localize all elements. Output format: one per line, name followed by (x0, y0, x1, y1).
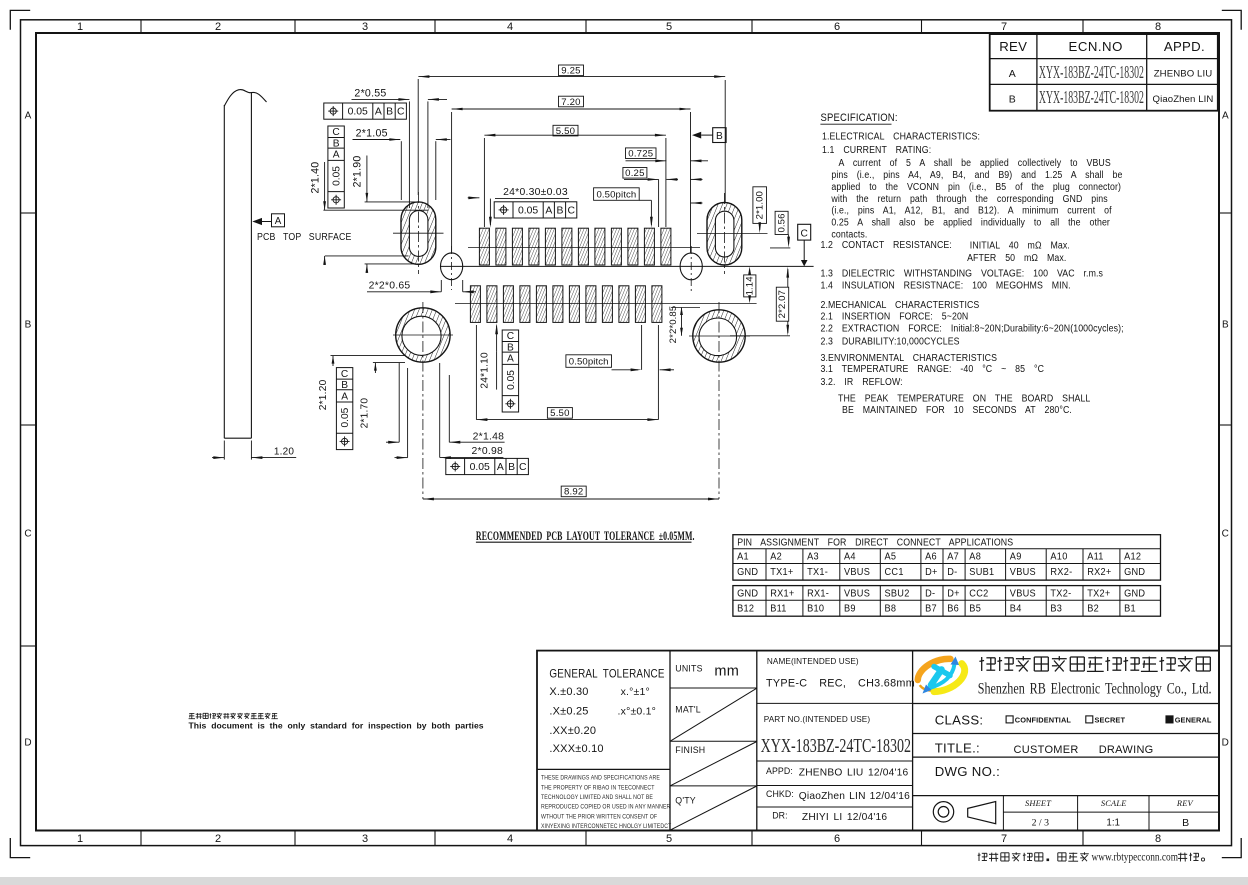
svg-text:C: C (1222, 529, 1229, 540)
svg-text:B9: B9 (844, 603, 856, 614)
svg-text:7: 7 (1001, 21, 1007, 33)
svg-text:XINYEXING INTERCONNETEC HNOLGY: XINYEXING INTERCONNETEC HNOLGY LIMITEDCT (541, 824, 672, 831)
svg-text:A: A (25, 111, 32, 122)
svg-text:A10: A10 (1050, 551, 1067, 562)
svg-text:THE PEAK TEMPERATURE ON THE BO: THE PEAK TEMPERATURE ON THE BOARD SHALL (838, 392, 1090, 404)
svg-text:A8: A8 (969, 551, 981, 562)
svg-text:GND: GND (737, 567, 758, 578)
svg-text:CC1: CC1 (885, 567, 904, 578)
svg-text:TITLE.:: TITLE.: (935, 741, 980, 756)
svg-text:A current of 5 A shall be appl: A current of 5 A shall be applied collec… (839, 157, 1111, 169)
svg-text:VBUS: VBUS (844, 567, 870, 578)
svg-text:3: 3 (362, 21, 368, 33)
svg-text:.XX±0.20: .XX±0.20 (549, 725, 596, 737)
svg-text:A: A (333, 150, 340, 161)
svg-text:2: 2 (215, 833, 221, 845)
svg-text:X.±0.30: X.±0.30 (549, 686, 588, 698)
svg-text:A: A (1222, 111, 1229, 122)
svg-text:0.50pitch: 0.50pitch (596, 189, 636, 200)
svg-text:TYPE-C REC, CH3.68mm: TYPE-C REC, CH3.68mm (766, 678, 915, 690)
svg-text:2*0.98: 2*0.98 (472, 446, 504, 457)
svg-text:A: A (275, 216, 282, 227)
svg-text:XYX-183BZ-24TC-18302: XYX-183BZ-24TC-18302 (1039, 63, 1144, 83)
svg-text:C: C (801, 229, 808, 240)
svg-text:REV: REV (1176, 799, 1194, 808)
svg-text:1.20: 1.20 (274, 447, 295, 458)
svg-text:REPRODUCED COPIED OR USED IN A: REPRODUCED COPIED OR USED IN ANY MANNER (541, 804, 671, 811)
svg-text:SECRET: SECRET (1095, 716, 1126, 725)
svg-text:CHKD:: CHKD: (766, 789, 794, 799)
svg-text:C: C (519, 462, 527, 473)
svg-text:2.MECHANICAL CHARACTERISTICS: 2.MECHANICAL CHARACTERISTICS (821, 298, 980, 310)
svg-text:2: 2 (215, 21, 221, 33)
svg-text:D: D (1222, 738, 1229, 749)
svg-text:1.14: 1.14 (744, 276, 755, 296)
svg-text:B2: B2 (1087, 603, 1099, 614)
svg-text:APPD.: APPD. (1164, 39, 1205, 54)
svg-text:A6: A6 (925, 551, 937, 562)
svg-text:PART NO.(INTENDED USE): PART NO.(INTENDED USE) (764, 715, 871, 724)
svg-text:2*1.90: 2*1.90 (351, 156, 363, 188)
svg-text:A11: A11 (1087, 551, 1104, 562)
svg-text:1:1: 1:1 (1106, 818, 1120, 829)
svg-text:WTHOUT THE PRIOR WRITTEN CONS: WTHOUT THE PRIOR WRITTEN CONSENT OF (541, 814, 657, 821)
svg-text:0.56: 0.56 (776, 213, 787, 232)
svg-text:TX2-: TX2- (1050, 588, 1071, 599)
svg-text:QiaoZhen LIN 12/04'16: QiaoZhen LIN 12/04'16 (799, 791, 910, 802)
svg-text:www.rbtypecconn.com: www.rbtypecconn.com (1092, 852, 1178, 864)
svg-text:This document is the only stan: This document is the only standard for i… (189, 720, 484, 730)
svg-text:C: C (507, 331, 514, 342)
svg-text:5: 5 (666, 833, 672, 845)
svg-text:MAT'L: MAT'L (675, 705, 701, 715)
svg-text:B: B (716, 131, 723, 142)
svg-text:7: 7 (1001, 833, 1007, 845)
svg-text:x.°±1°: x.°±1° (621, 686, 650, 698)
svg-text:0.05: 0.05 (340, 407, 351, 427)
svg-text:UNITS: UNITS (675, 663, 702, 673)
svg-text:2.2 EXTRACTION FORCE: Initial:: 2.2 EXTRACTION FORCE: Initial:8~20N;Dura… (821, 322, 1124, 334)
svg-text:D-: D- (947, 567, 957, 578)
svg-text:B8: B8 (885, 603, 897, 614)
svg-text:B: B (341, 380, 348, 391)
svg-text:6: 6 (834, 833, 840, 845)
svg-text:0.25 A shall also be applied i: 0.25 A shall also be applied individuall… (831, 216, 1110, 228)
svg-text:A: A (545, 205, 552, 216)
svg-text:CLASS:: CLASS: (935, 713, 984, 728)
svg-text:24*1.10: 24*1.10 (480, 352, 491, 389)
svg-text:A: A (1009, 68, 1016, 80)
svg-text:D: D (24, 738, 31, 749)
svg-text:B: B (1182, 817, 1189, 829)
svg-text:mm: mm (714, 664, 739, 680)
svg-text:3: 3 (362, 833, 368, 845)
svg-text:DWG NO.:: DWG NO.: (935, 764, 1000, 779)
svg-text:1.3 DIELECTRIC WITHSTANDING VO: 1.3 DIELECTRIC WITHSTANDING VOLTAGE: 100… (821, 267, 1104, 279)
svg-text:pins (i.e., pins A4, A9, B4, a: pins (i.e., pins A4, A9, B4, and B9) and… (831, 168, 1122, 180)
svg-text:A5: A5 (885, 551, 897, 562)
svg-text:1.2 CONTACT RESISTANCE:: 1.2 CONTACT RESISTANCE: (821, 239, 952, 251)
svg-text:0.05: 0.05 (348, 107, 368, 118)
svg-text:C: C (567, 205, 575, 216)
svg-text:0.25: 0.25 (625, 168, 644, 179)
svg-text:B: B (507, 342, 514, 353)
svg-text:RX1-: RX1- (807, 588, 829, 599)
svg-text:A: A (341, 391, 348, 402)
svg-text:8: 8 (1155, 21, 1161, 33)
svg-text:(i.e., pins A1, A12, B1, and B: (i.e., pins A1, A12, B1, and B12). A min… (831, 204, 1111, 216)
svg-text:8.92: 8.92 (564, 487, 583, 498)
svg-text:A: A (507, 354, 514, 365)
svg-text:2*1.20: 2*1.20 (318, 379, 329, 410)
svg-text:5.50: 5.50 (550, 408, 569, 419)
svg-text:RX2-: RX2- (1050, 567, 1072, 578)
svg-text:B: B (333, 138, 340, 149)
svg-text:A3: A3 (807, 551, 819, 562)
svg-text:5.50: 5.50 (556, 126, 575, 137)
svg-text:ZHENBO LIU: ZHENBO LIU (1154, 69, 1213, 80)
svg-text:TX2+: TX2+ (1087, 588, 1110, 599)
svg-text:B: B (1222, 320, 1229, 331)
svg-text:GENERAL TOLERANCE: GENERAL TOLERANCE (549, 668, 664, 681)
svg-text:2 / 3: 2 / 3 (1032, 817, 1050, 828)
svg-text:AFTER 50 mΩ Max.: AFTER 50 mΩ Max. (967, 251, 1066, 263)
svg-text:THESE DRAWINGS AND SPECIFICATI: THESE DRAWINGS AND SPECIFICATIONS ARE (541, 775, 660, 782)
svg-text:B4: B4 (1010, 603, 1022, 614)
svg-text:9.25: 9.25 (561, 66, 580, 77)
svg-text:2*2.07: 2*2.07 (777, 290, 788, 318)
svg-text:SUB1: SUB1 (969, 567, 994, 578)
svg-text:C: C (24, 529, 31, 540)
svg-text:B: B (1009, 93, 1016, 105)
svg-text:INITIAL 40 mΩ Max.: INITIAL 40 mΩ Max. (970, 239, 1070, 251)
svg-text:1.1 CURRENT RATING:: 1.1 CURRENT RATING: (822, 144, 931, 156)
svg-text:0.05: 0.05 (470, 462, 490, 473)
svg-text:2*1.05: 2*1.05 (356, 127, 388, 139)
svg-text:THE PROPERTY OF RIBAO IN TEECO: THE PROPERTY OF RIBAO IN TEECONNECT (541, 785, 655, 792)
svg-text:A12: A12 (1124, 551, 1141, 562)
svg-text:SPECIFICATION:: SPECIFICATION: (821, 113, 898, 125)
svg-text:D+: D+ (947, 588, 960, 599)
svg-text:BE MAINTAINED FOR 10 SECONDS A: BE MAINTAINED FOR 10 SECONDS AT 280°C. (842, 404, 1072, 416)
svg-text:GND: GND (1124, 588, 1145, 599)
svg-text:PCB TOP SURFACE: PCB TOP SURFACE (257, 230, 352, 242)
svg-text:D+: D+ (925, 567, 938, 578)
svg-text:B5: B5 (969, 603, 981, 614)
svg-text:B: B (557, 205, 564, 216)
svg-text:RX1+: RX1+ (770, 588, 794, 599)
svg-text:24*0.30±0.03: 24*0.30±0.03 (503, 187, 568, 198)
svg-text:B12: B12 (737, 603, 754, 614)
svg-text:ZHIYI LI 12/04'16: ZHIYI LI 12/04'16 (802, 812, 887, 823)
svg-text:DRAWING: DRAWING (1099, 744, 1154, 756)
svg-text:2*0.55: 2*0.55 (354, 87, 386, 99)
svg-text:2*1.70: 2*1.70 (359, 398, 370, 429)
svg-text:Q'TY: Q'TY (675, 796, 696, 806)
svg-text:SBU2: SBU2 (885, 588, 910, 599)
svg-text:TX1+: TX1+ (770, 567, 793, 578)
svg-text:XYX-183BZ-24TC-18302: XYX-183BZ-24TC-18302 (761, 735, 911, 757)
svg-text:2*2*0.65: 2*2*0.65 (369, 280, 411, 291)
svg-text:D-: D- (925, 588, 935, 599)
svg-text:RX2+: RX2+ (1087, 567, 1111, 578)
svg-text:XYX-183BZ-24TC-18302: XYX-183BZ-24TC-18302 (1039, 88, 1144, 108)
svg-text:A1: A1 (737, 551, 749, 562)
svg-text:A9: A9 (1010, 551, 1022, 562)
svg-text:CC2: CC2 (969, 588, 988, 599)
svg-text:PIN ASSIGNMENT FOR DIRECT CONN: PIN ASSIGNMENT FOR DIRECT CONNECT APPLIC… (737, 536, 1013, 548)
svg-text:applied to the VCONN pin (i.e.: applied to the VCONN pin (i.e., B5 of th… (831, 180, 1121, 192)
svg-text:A: A (497, 462, 504, 473)
svg-text:0.05: 0.05 (506, 370, 517, 390)
svg-text:GENERAL: GENERAL (1175, 716, 1212, 725)
svg-text:APPD:: APPD: (766, 766, 793, 776)
svg-text:A4: A4 (844, 551, 856, 562)
svg-text:SCALE: SCALE (1101, 799, 1127, 808)
svg-text:2*2*0.85: 2*2*0.85 (668, 306, 679, 344)
svg-text:TECHNOLOGY LIMITED AND SHALL N: TECHNOLOGY LIMITED AND SHALL NOT BE (541, 795, 653, 802)
svg-text:GND: GND (737, 588, 758, 599)
svg-text:4: 4 (507, 21, 513, 33)
svg-text:SHEET: SHEET (1025, 799, 1052, 808)
svg-text:Shenzhen RB Electronic Technol: Shenzhen RB Electronic Technology Co., L… (978, 680, 1212, 698)
svg-text:C: C (397, 107, 405, 118)
svg-text:VBUS: VBUS (1010, 567, 1036, 578)
svg-text:CUSTOMER: CUSTOMER (1014, 744, 1079, 756)
svg-text:B: B (508, 462, 515, 473)
svg-text:0.725: 0.725 (628, 148, 653, 159)
svg-text:DR:: DR: (772, 811, 787, 821)
svg-text:.XXX±0.10: .XXX±0.10 (549, 743, 603, 755)
svg-text:2.1 INSERTION FORCE: 5~20N: 2.1 INSERTION FORCE: 5~20N (821, 310, 969, 322)
svg-text:ZHENBO LIU 12/04'16: ZHENBO LIU 12/04'16 (799, 768, 909, 779)
svg-text:8: 8 (1155, 833, 1161, 845)
svg-text:0.05: 0.05 (518, 205, 538, 216)
svg-text:NAME(INTENDED USE): NAME(INTENDED USE) (767, 657, 859, 666)
svg-text:B6: B6 (947, 603, 959, 614)
svg-text:5: 5 (666, 21, 672, 33)
svg-text:B11: B11 (770, 603, 787, 614)
svg-text:2*1.00: 2*1.00 (755, 191, 766, 219)
svg-text:3.ENVIRONMENTAL CHARACTERISTI: 3.ENVIRONMENTAL CHARACTERISTICS (821, 351, 998, 363)
svg-text:C: C (341, 369, 348, 380)
svg-text:REV: REV (999, 39, 1027, 54)
svg-text:2*1.40: 2*1.40 (310, 162, 322, 194)
svg-text:1.4 INSULATION RESISTNACE: 100: 1.4 INSULATION RESISTNACE: 100 MEGOHMS M… (821, 279, 1071, 291)
svg-text:TX1-: TX1- (807, 567, 828, 578)
svg-text:with the return path through t: with the return path through the corresp… (830, 192, 1107, 204)
svg-text:B10: B10 (807, 603, 824, 614)
svg-text:0.50pitch: 0.50pitch (569, 356, 609, 367)
svg-text:VBUS: VBUS (1010, 588, 1036, 599)
svg-text:1: 1 (77, 21, 83, 33)
svg-text:B7: B7 (925, 603, 937, 614)
svg-text:.x°±0.1°: .x°±0.1° (618, 706, 657, 718)
svg-text:A2: A2 (770, 551, 782, 562)
svg-text:3.2. IR REFLOW:: 3.2. IR REFLOW: (821, 375, 903, 387)
svg-text:C: C (332, 127, 339, 138)
svg-text:7.20: 7.20 (561, 97, 580, 108)
svg-text:3.1 TEMPERATURE RANGE: -40 °C: 3.1 TEMPERATURE RANGE: -40 °C ~ 85 °C (821, 362, 1045, 374)
svg-text:6: 6 (834, 21, 840, 33)
svg-text:CONFIDENTIAL: CONFIDENTIAL (1015, 716, 1072, 725)
svg-text:A7: A7 (947, 551, 959, 562)
svg-text:B1: B1 (1124, 603, 1136, 614)
svg-text:2*1.48: 2*1.48 (473, 432, 505, 443)
svg-text:B: B (386, 107, 393, 118)
svg-text:GND: GND (1124, 567, 1145, 578)
svg-text:ECN.NO: ECN.NO (1069, 39, 1123, 54)
svg-text:B: B (25, 320, 32, 331)
svg-text:QiaoZhen LIN: QiaoZhen LIN (1153, 94, 1214, 105)
svg-text:VBUS: VBUS (844, 588, 870, 599)
svg-text:B3: B3 (1050, 603, 1062, 614)
svg-text:0.05: 0.05 (332, 166, 343, 186)
svg-text:4: 4 (507, 833, 513, 845)
svg-text:2.3 DURABILITY:10,000CYCLES: 2.3 DURABILITY:10,000CYCLES (821, 335, 960, 347)
svg-text:1: 1 (77, 833, 83, 845)
svg-text:A: A (375, 107, 382, 118)
svg-text:.X±0.25: .X±0.25 (549, 706, 588, 718)
svg-text:1.ELECTRICAL CHARACTERISTICS:: 1.ELECTRICAL CHARACTERISTICS: (822, 130, 980, 142)
svg-text:FINISH: FINISH (675, 745, 705, 755)
